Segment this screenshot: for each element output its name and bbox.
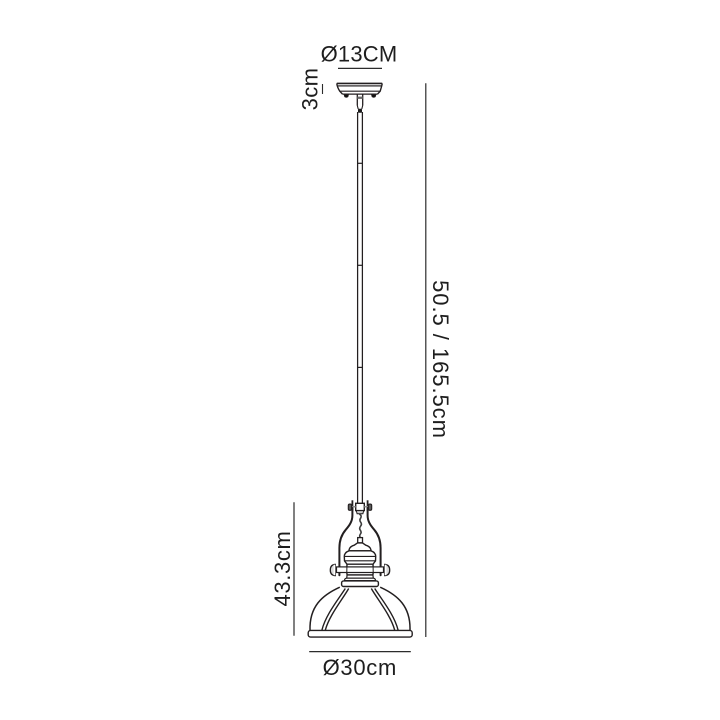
svg-text:3cm: 3cm bbox=[298, 68, 323, 111]
svg-text:Ø13CM: Ø13CM bbox=[321, 42, 398, 67]
svg-text:50.5 / 165.5cm: 50.5 / 165.5cm bbox=[428, 280, 453, 439]
svg-text:Ø30cm: Ø30cm bbox=[323, 655, 397, 680]
svg-text:43.3cm: 43.3cm bbox=[270, 530, 295, 606]
